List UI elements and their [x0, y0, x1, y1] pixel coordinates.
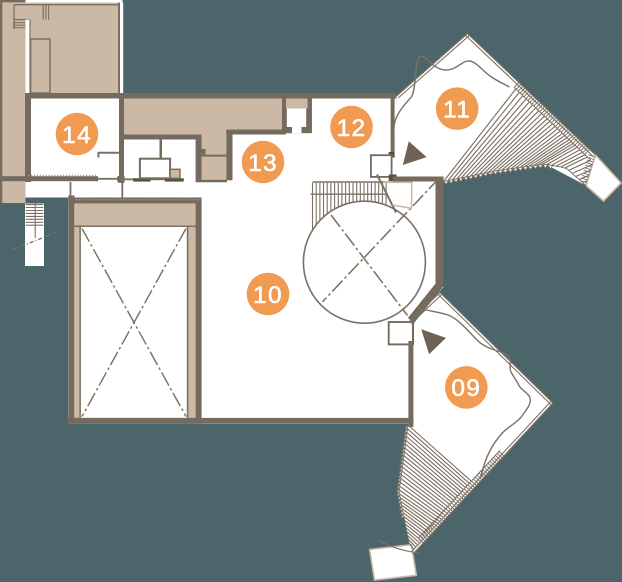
svg-text:11: 11 — [443, 97, 471, 124]
svg-text:14: 14 — [62, 122, 92, 149]
svg-text:12: 12 — [337, 115, 367, 142]
svg-text:10: 10 — [253, 282, 283, 309]
svg-text:09: 09 — [451, 375, 481, 402]
svg-text:13: 13 — [248, 150, 278, 177]
